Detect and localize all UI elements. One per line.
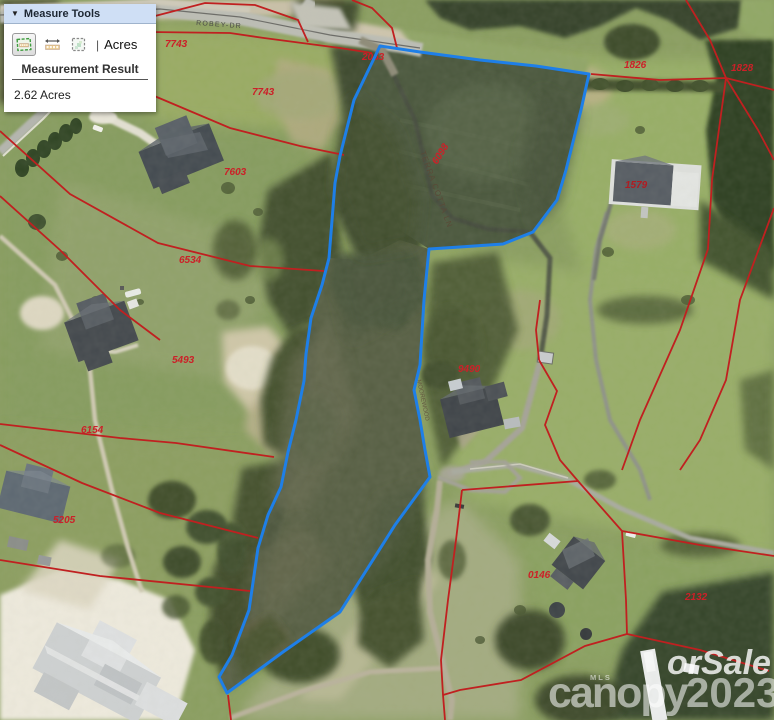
svg-text:1579: 1579: [625, 180, 648, 191]
svg-text:5205: 5205: [53, 515, 76, 526]
svg-text:6154: 6154: [81, 425, 104, 436]
svg-text:7743: 7743: [252, 87, 275, 98]
svg-text:canopy: canopy: [548, 669, 689, 717]
svg-text:2132: 2132: [684, 592, 708, 603]
svg-text:7603: 7603: [224, 167, 247, 178]
svg-text:0146: 0146: [528, 570, 551, 581]
svg-text:7743: 7743: [165, 39, 188, 50]
svg-text:1828: 1828: [731, 63, 754, 74]
svg-text:2023: 2023: [686, 669, 774, 716]
svg-text:MLS: MLS: [590, 673, 612, 682]
svg-text:5493: 5493: [172, 355, 195, 366]
svg-text:9490: 9490: [458, 364, 481, 375]
svg-text:1826: 1826: [624, 60, 647, 71]
svg-text:6534: 6534: [179, 255, 202, 266]
